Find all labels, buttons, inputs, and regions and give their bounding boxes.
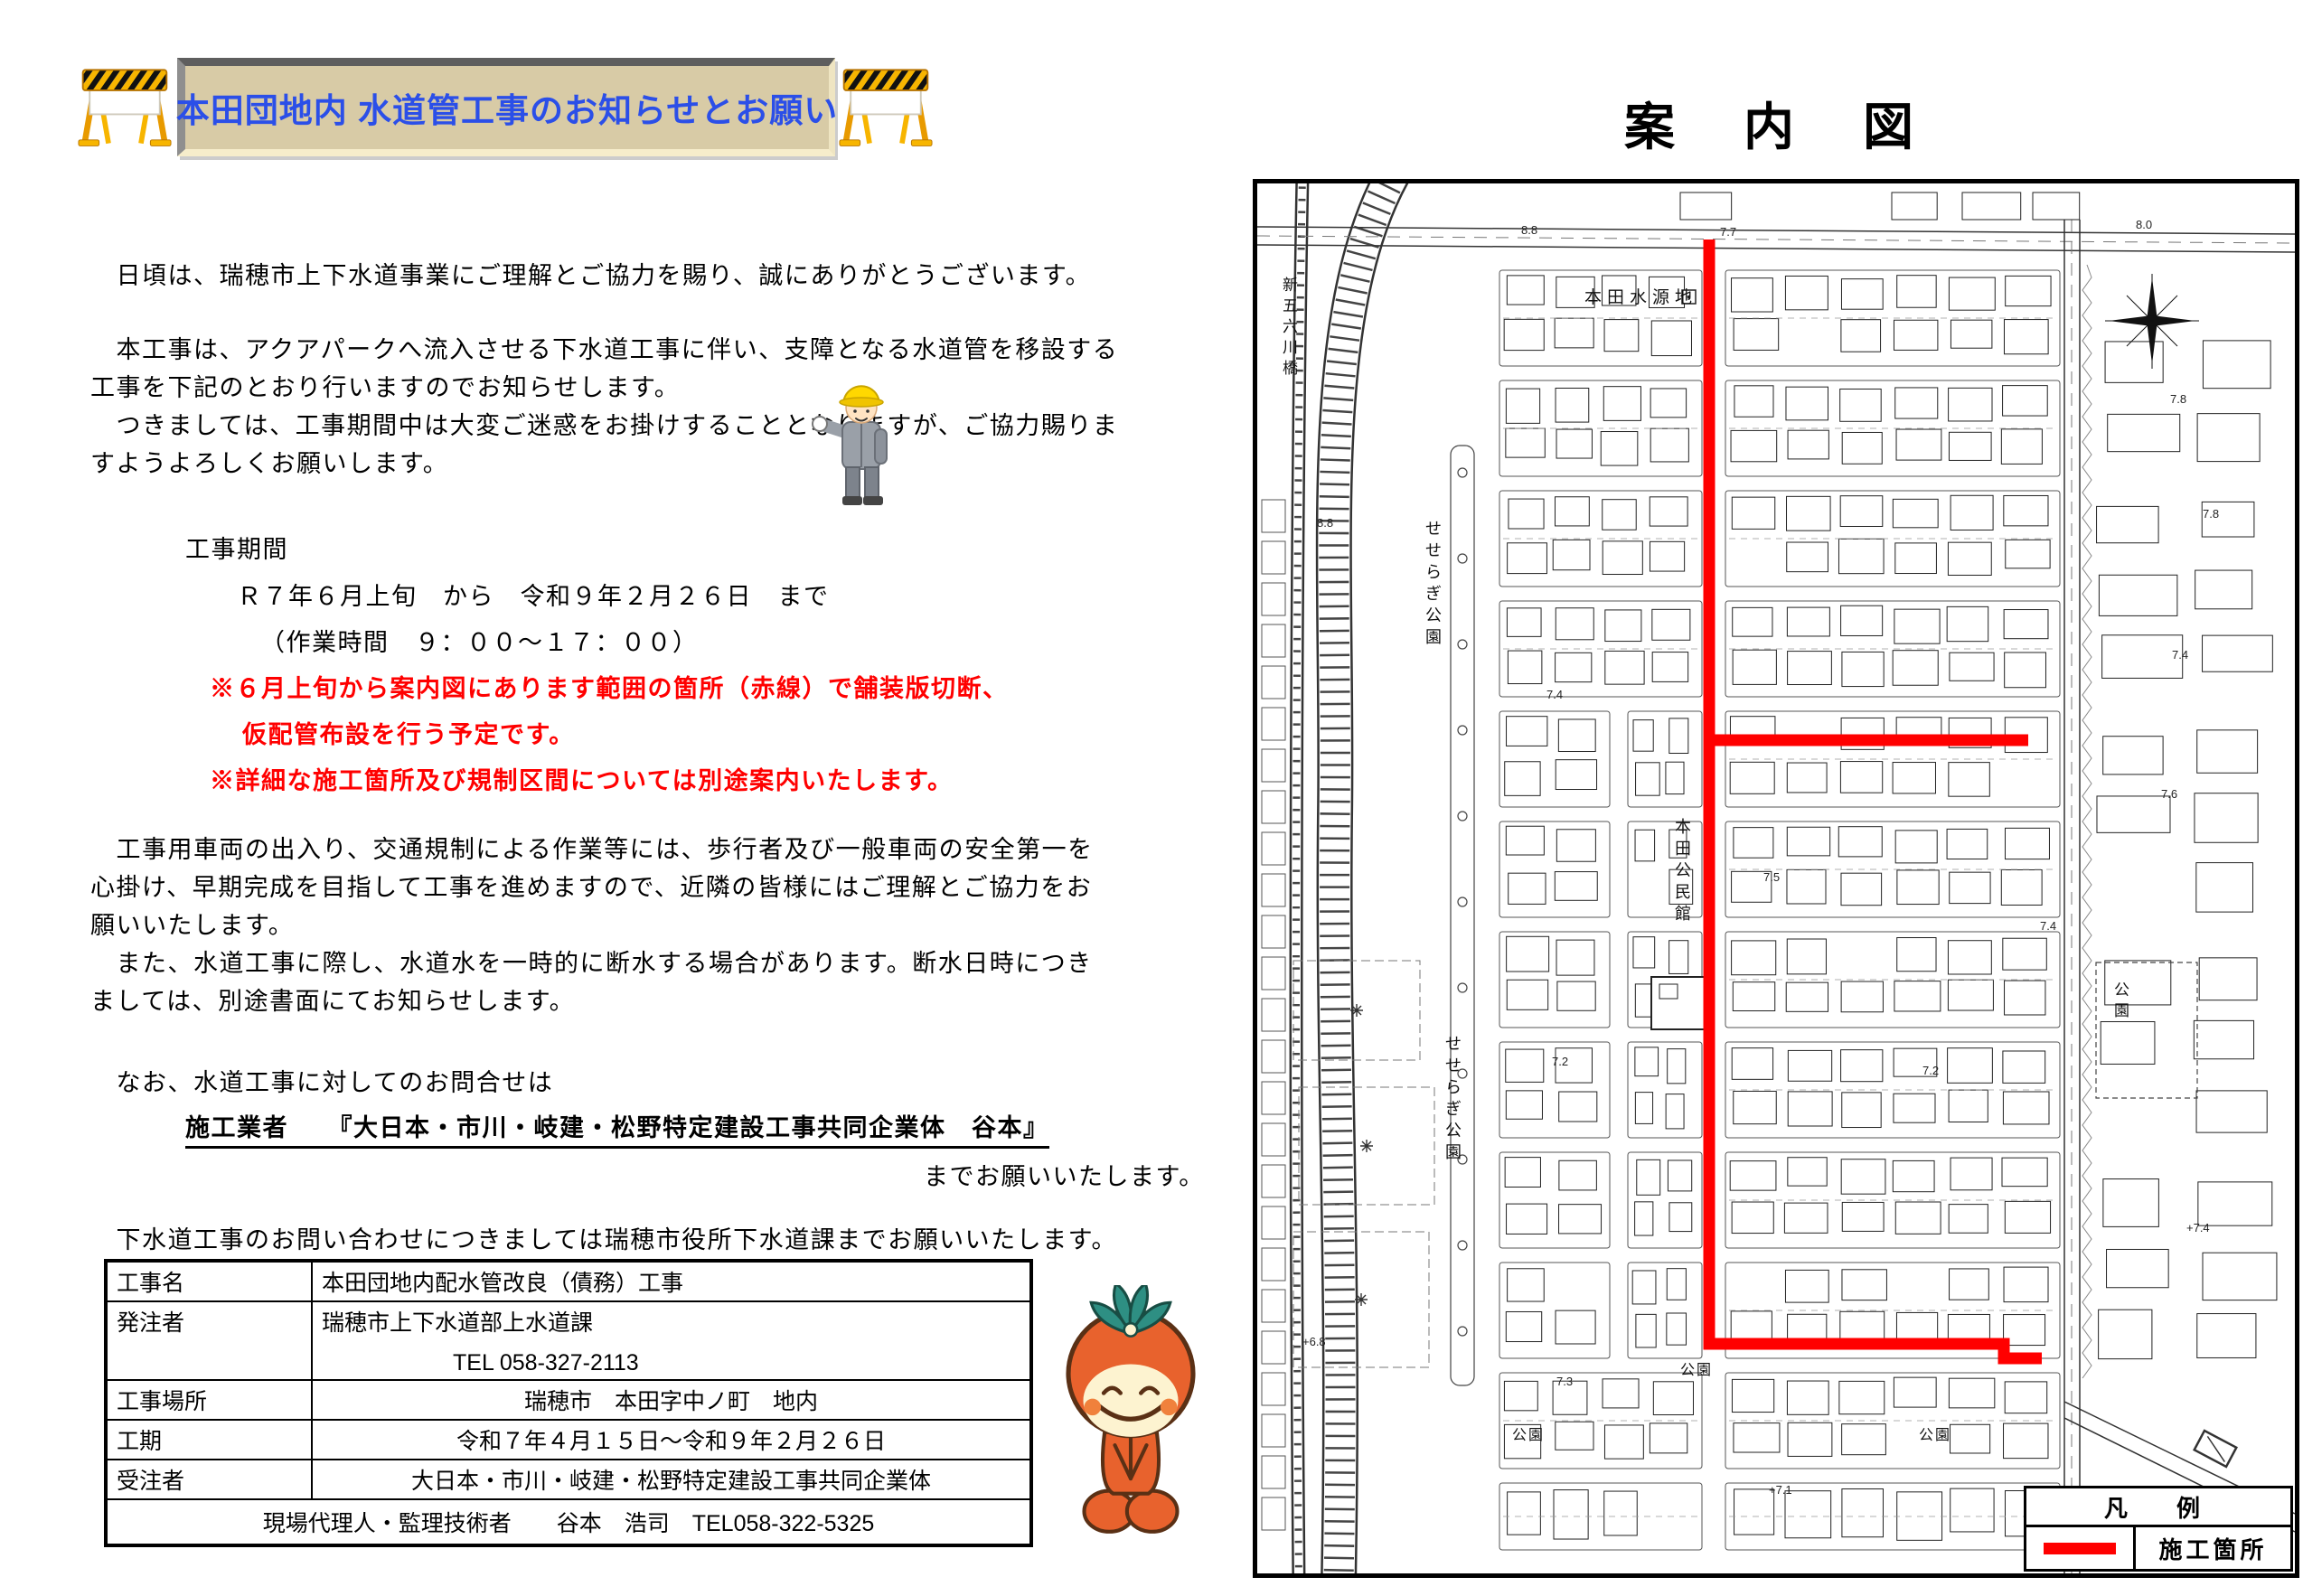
elevation-label: 7.5 [1763, 870, 1780, 884]
table-row: 発注者 瑞穂市上下水道部上水道課 TEL 058-327-2113 [108, 1302, 1029, 1381]
elevation-label: 7.8 [2203, 507, 2219, 521]
map-label: 公園 [1680, 1363, 1713, 1378]
elevation-label: 7.6 [2161, 787, 2177, 801]
text-line: 下水道工事のお問い合わせにつきましては瑞穂市役所下水道課までお願いいたします。 [90, 1220, 1117, 1255]
site-agent-info: 現場代理人・監理技術者 谷本 浩司 TEL058-322-5325 [108, 1500, 1029, 1544]
elevation-label: 8.0 [2136, 218, 2152, 231]
construction-notice-page: 本田団地内 水道管工事のお知らせとお願い 案 内 図 日頃は、瑞穂市上下水道事業… [0, 0, 2303, 1596]
client-phone: TEL 058-327-2113 [453, 1350, 1020, 1376]
text-line: 施工業者 『大日本・市川・岐建・松野特定建設工事共同企業体 谷本』 [185, 1108, 1049, 1149]
row-value: 大日本・市川・岐建・松野特定建設工事共同企業体 [313, 1460, 1029, 1498]
legend-row: 施工箇所 [2026, 1527, 2290, 1569]
map-canvas: 本田水源地新五六川橋せせらぎ公園せせらぎ公園本田公民館公園公園公園公園8.87.… [1257, 183, 2295, 1573]
text-line: ※詳細な施工箇所及び規制区間については別途案内いたします。 [210, 761, 953, 796]
text-line: 工事用車両の出入り、交通規制による作業等には、歩行者及び一般車両の安全第一を [90, 830, 1094, 865]
elevation-label: +7.4 [2186, 1221, 2210, 1235]
elevation-label: 7.2 [1922, 1064, 1939, 1077]
city-mascot-illustration [1059, 1285, 1202, 1536]
elevation-label: 7.8 [2170, 392, 2186, 406]
elevation-label: 8.8 [1521, 223, 1537, 237]
map-label: 本田水源地 [1584, 287, 1697, 307]
table-row: 受注者 大日本・市川・岐建・松野特定建設工事共同企業体 [108, 1460, 1029, 1500]
table-row: 工期 令和７年４月１５日～令和９年２月２６日 [108, 1421, 1029, 1460]
text-line: 工事を下記のとおり行いますのでお知らせします。 [90, 368, 680, 403]
row-value: 本田団地内配水管改良（債務）工事 [313, 1263, 1029, 1300]
elevation-label: 7.7 [1720, 225, 1736, 239]
barricade-icon [839, 60, 933, 152]
text-line: すようよろしくお願いします。 [90, 444, 448, 479]
elevation-label: +7.1 [1769, 1483, 1792, 1497]
text-line: 日頃は、瑞穂市上下水道事業にご理解とご協力を賜り、誠にありがとうございます。 [90, 256, 1091, 291]
text-line: 工事期間 [185, 530, 288, 565]
elevation-label: 8.8 [1317, 516, 1333, 530]
row-label: 工期 [108, 1421, 313, 1459]
text-line: また、水道工事に際し、水道水を一時的に断水する場合があります。断水日時につき [90, 944, 1093, 979]
map-label: 本田公民館 [1675, 818, 1691, 923]
map-legend: 凡 例 施工箇所 [2024, 1486, 2293, 1572]
row-value: 瑞穂市上下水道部上水道課 TEL 058-327-2113 [313, 1302, 1029, 1379]
text-line: までお願いいたします。 [924, 1157, 1205, 1192]
text-line: ましては、別途書面にてお知らせします。 [90, 981, 575, 1017]
text-line: Ｒ７年６月上旬 から 令和９年２月２６日 まで [237, 577, 830, 612]
notice-banner: 本田団地内 水道管工事のお知らせとお願い [177, 58, 835, 156]
text-line: （作業時間 ９：００～１７：００） [260, 623, 699, 658]
legend-title: 凡 例 [2026, 1488, 2290, 1527]
row-label: 発注者 [108, 1302, 313, 1379]
legend-swatch [2044, 1543, 2116, 1554]
legend-item-label: 施工箇所 [2136, 1527, 2290, 1569]
table-row: 工事名 本田団地内配水管改良（債務）工事 [108, 1263, 1029, 1302]
text-line: 心掛け、早期完成を目指して工事を進めますので、近隣の皆様にはご理解とご協力をお [90, 868, 1092, 903]
map-label: 公園 [1512, 1428, 1545, 1443]
elevation-label: 7.2 [1552, 1055, 1568, 1068]
map-title: 案 内 図 [1255, 87, 2292, 160]
text-line: 本工事は、アクアパークへ流入させる下水道工事に伴い、支障となる水道管を移設する [90, 330, 1118, 365]
text-line: 仮配管布設を行う予定です。 [242, 715, 575, 750]
text-line: なお、水道工事に対してのお問合せは [90, 1063, 553, 1098]
map-label: 公園 [1919, 1428, 1951, 1443]
notice-title: 本田団地内 水道管工事のお知らせとお願い [176, 83, 839, 132]
text-line: 願いいたします。 [90, 906, 294, 941]
row-label: 受注者 [108, 1460, 313, 1498]
elevation-label: 7.4 [2172, 648, 2188, 662]
construction-worker-illustration [810, 358, 918, 513]
project-info-table: 工事名 本田団地内配水管改良（債務）工事 発注者 瑞穂市上下水道部上水道課 TE… [104, 1259, 1033, 1547]
row-label: 工事名 [108, 1263, 313, 1300]
map-label: 新五六川橋 [1283, 277, 1298, 377]
row-value: 瑞穂市 本田字中ノ町 地内 [313, 1381, 1029, 1419]
client-name: 瑞穂市上下水道部上水道課 [322, 1305, 1020, 1338]
table-footer-row: 現場代理人・監理技術者 谷本 浩司 TEL058-322-5325 [108, 1500, 1029, 1544]
guide-map: 本田水源地新五六川橋せせらぎ公園せせらぎ公園本田公民館公園公園公園公園8.87.… [1253, 179, 2299, 1578]
barricade-icon [78, 60, 172, 152]
elevation-label: 7.3 [1556, 1375, 1573, 1388]
text-line: ※６月上旬から案内図にあります範囲の箇所（赤線）で舗装版切断、 [210, 669, 1009, 704]
row-label: 工事場所 [108, 1381, 313, 1419]
elevation-label: +6.8 [1302, 1335, 1326, 1348]
text-line: つきましては、工事期間中は大変ご迷惑をお掛けすることとなりますが、ご協力賜りま [90, 406, 1118, 441]
row-value: 令和７年４月１５日～令和９年２月２６日 [313, 1421, 1029, 1459]
table-row: 工事場所 瑞穂市 本田字中ノ町 地内 [108, 1381, 1029, 1421]
elevation-label: 7.4 [2040, 919, 2056, 933]
elevation-label: 7.4 [1546, 688, 1563, 701]
